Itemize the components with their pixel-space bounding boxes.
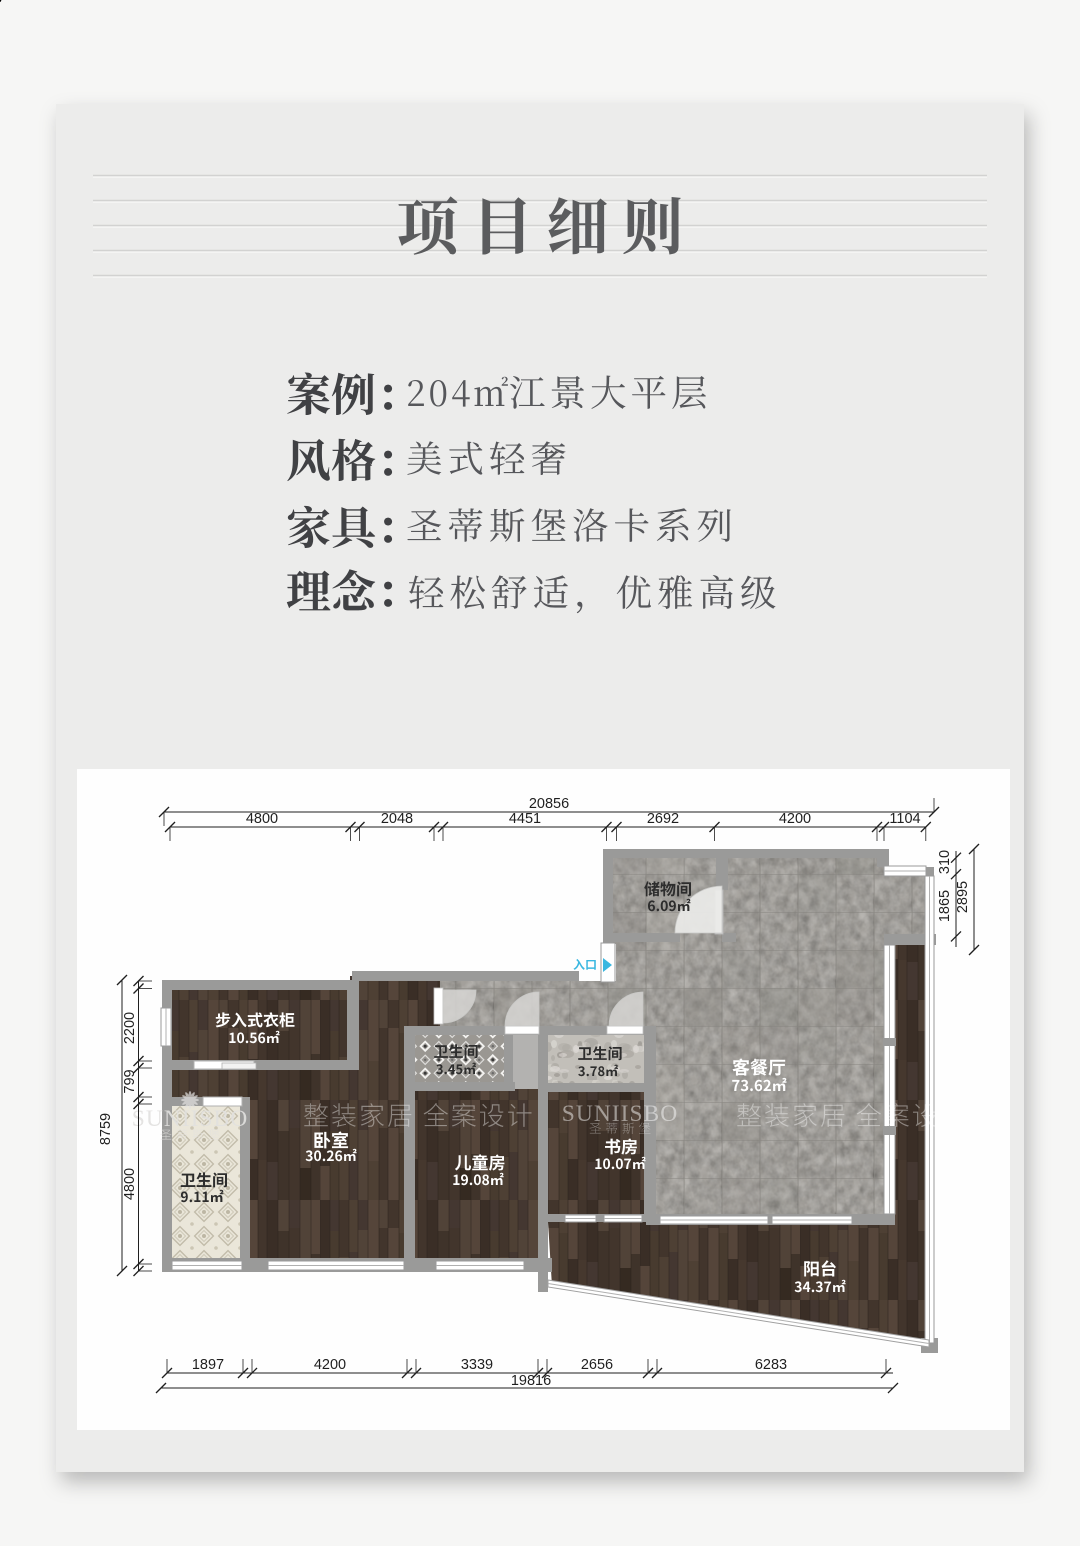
svg-text:19816: 19816 <box>511 1373 551 1389</box>
svg-text:310: 310 <box>937 850 953 874</box>
svg-text:SUNIISBO: SUNIISBO <box>132 1106 248 1132</box>
svg-text:2200: 2200 <box>122 1012 138 1044</box>
svg-text:20856: 20856 <box>529 796 569 812</box>
svg-text:1104: 1104 <box>889 811 920 827</box>
svg-text:1865: 1865 <box>937 890 953 922</box>
svg-text:799: 799 <box>122 1069 138 1093</box>
svg-text:3339: 3339 <box>461 1357 493 1373</box>
svg-text:4451: 4451 <box>509 811 541 827</box>
svg-text:1897: 1897 <box>192 1357 224 1373</box>
svg-text:SUNIISBO: SUNIISBO <box>562 1101 678 1127</box>
svg-text:6283: 6283 <box>755 1357 787 1373</box>
svg-text:2692: 2692 <box>647 811 679 827</box>
svg-text:4800: 4800 <box>246 811 278 827</box>
svg-text:4800: 4800 <box>122 1168 138 1200</box>
svg-text:8759: 8759 <box>98 1113 114 1145</box>
svg-text:2048: 2048 <box>381 811 413 827</box>
svg-text:4200: 4200 <box>314 1357 346 1373</box>
svg-text:2895: 2895 <box>955 881 971 913</box>
svg-text:4200: 4200 <box>779 811 811 827</box>
svg-text:2656: 2656 <box>581 1357 613 1373</box>
